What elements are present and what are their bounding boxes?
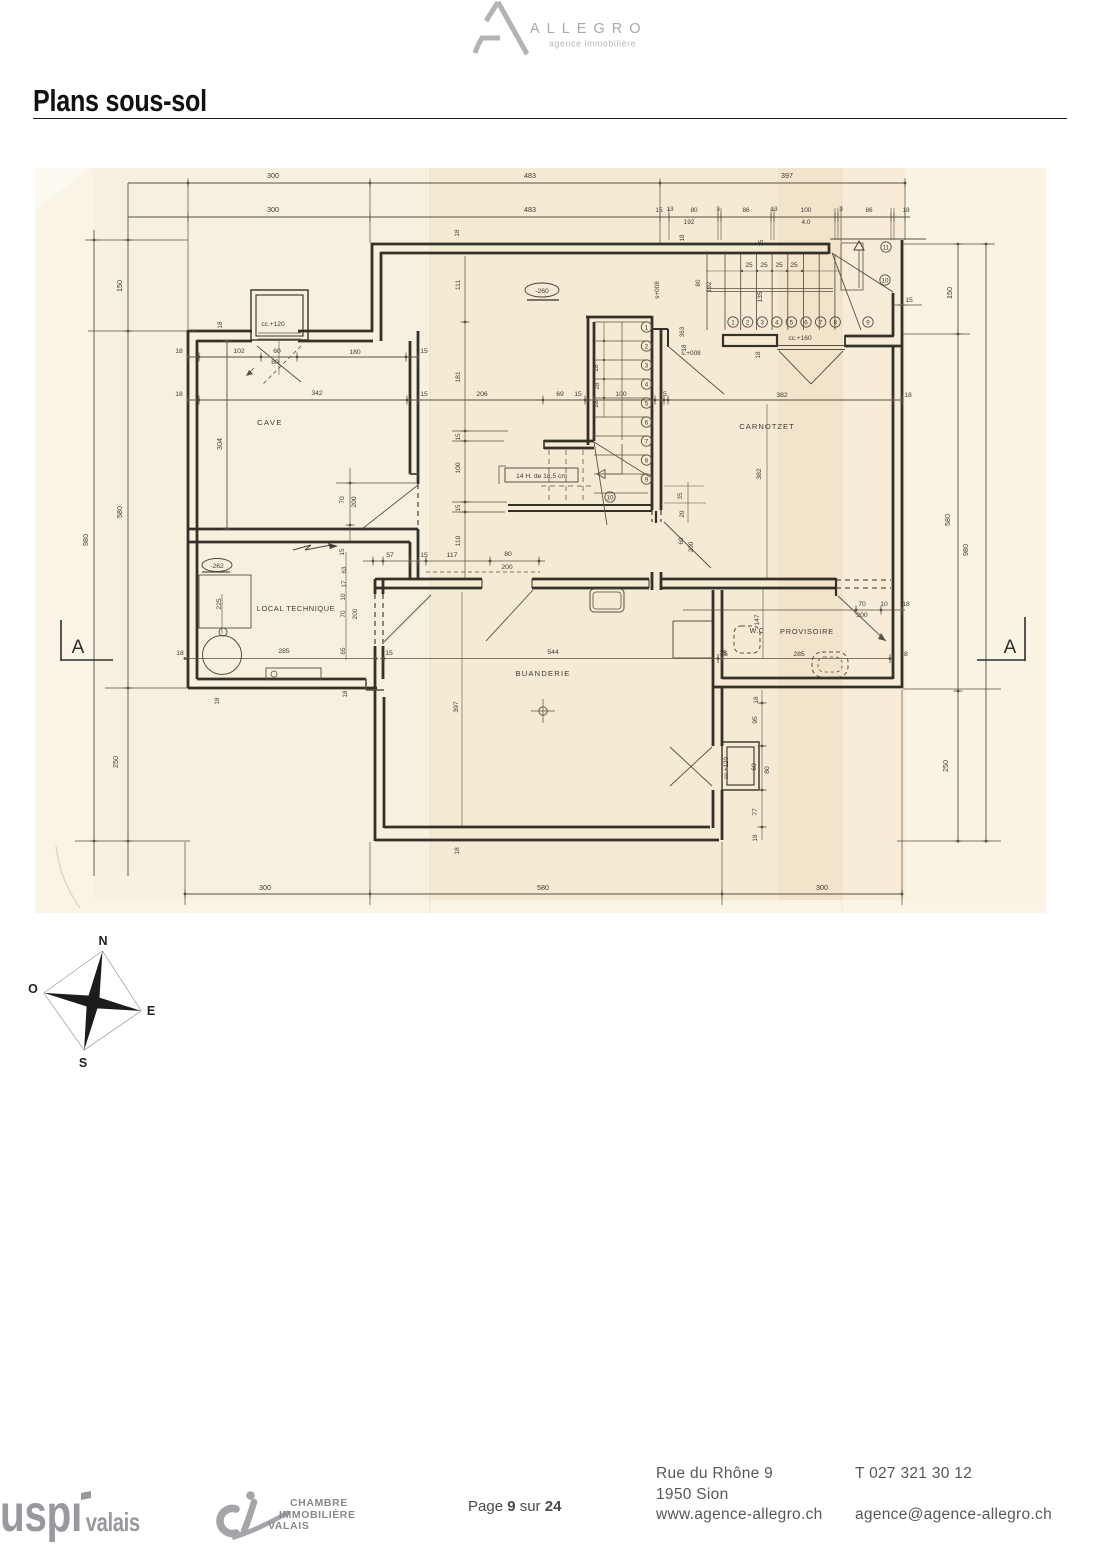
svg-text:18: 18 xyxy=(681,344,688,351)
svg-text:60: 60 xyxy=(273,348,281,355)
svg-text:150: 150 xyxy=(115,280,124,292)
svg-text:69: 69 xyxy=(556,391,564,398)
svg-text:60: 60 xyxy=(751,763,758,771)
svg-text:980: 980 xyxy=(81,534,90,546)
svg-text:8: 8 xyxy=(833,319,837,326)
svg-text:65: 65 xyxy=(340,647,347,655)
svg-text:57: 57 xyxy=(386,552,394,559)
svg-text:200: 200 xyxy=(856,612,868,619)
svg-text:8: 8 xyxy=(645,457,649,464)
svg-text:A: A xyxy=(72,637,85,658)
svg-text:25: 25 xyxy=(760,262,768,269)
svg-text:-262: -262 xyxy=(210,563,224,570)
svg-text:300: 300 xyxy=(267,171,279,180)
svg-text:580: 580 xyxy=(537,883,549,892)
svg-text:70: 70 xyxy=(858,601,866,608)
svg-text:18: 18 xyxy=(902,207,910,214)
svg-text:10: 10 xyxy=(880,601,888,608)
svg-text:CAVE: CAVE xyxy=(257,418,283,427)
svg-text:397: 397 xyxy=(781,171,793,180)
svg-text:100: 100 xyxy=(615,391,627,398)
svg-text:544: 544 xyxy=(547,649,559,656)
svg-text:63: 63 xyxy=(341,566,348,574)
svg-text:200: 200 xyxy=(501,564,513,571)
svg-text:S: S xyxy=(79,1056,87,1070)
svg-text:1: 1 xyxy=(645,324,649,331)
svg-text:9: 9 xyxy=(645,476,649,483)
svg-text:300: 300 xyxy=(267,205,279,214)
svg-text:300: 300 xyxy=(816,883,828,892)
svg-text:15: 15 xyxy=(385,650,393,657)
svg-text:300: 300 xyxy=(259,883,271,892)
svg-text:3: 3 xyxy=(645,362,649,369)
svg-text:10: 10 xyxy=(607,494,614,501)
svg-text:18: 18 xyxy=(454,229,461,237)
svg-text:1: 1 xyxy=(731,319,735,326)
svg-text:35: 35 xyxy=(677,492,684,499)
svg-text:100: 100 xyxy=(801,207,812,214)
svg-text:363: 363 xyxy=(679,326,686,337)
svg-text:117: 117 xyxy=(447,552,458,559)
svg-text:3: 3 xyxy=(760,319,764,326)
svg-text:382: 382 xyxy=(776,392,788,399)
svg-text:A: A xyxy=(1004,637,1017,658)
svg-text:10: 10 xyxy=(340,593,347,601)
svg-text:111: 111 xyxy=(455,280,462,291)
svg-text:15: 15 xyxy=(758,239,765,246)
svg-text:6: 6 xyxy=(645,419,649,426)
svg-text:580: 580 xyxy=(115,506,124,518)
svg-text:9: 9 xyxy=(866,319,870,326)
svg-text:304: 304 xyxy=(215,438,224,450)
svg-text:200: 200 xyxy=(352,608,359,619)
svg-text:95: 95 xyxy=(752,716,759,724)
svg-text:4: 4 xyxy=(775,319,779,326)
svg-text:11: 11 xyxy=(883,244,890,251)
svg-text:483: 483 xyxy=(524,171,536,180)
svg-text:5: 5 xyxy=(645,400,649,407)
svg-text:18: 18 xyxy=(175,348,183,355)
svg-text:15: 15 xyxy=(420,552,428,559)
svg-text:483: 483 xyxy=(524,205,536,214)
svg-text:18: 18 xyxy=(175,391,183,398)
svg-text:25: 25 xyxy=(775,262,783,269)
svg-text:80: 80 xyxy=(764,766,771,774)
svg-text:18: 18 xyxy=(217,321,224,329)
svg-text:342: 342 xyxy=(311,390,323,397)
svg-text:17: 17 xyxy=(341,580,348,588)
svg-text:2: 2 xyxy=(746,319,750,326)
svg-text:7: 7 xyxy=(645,438,649,445)
svg-text:-260: -260 xyxy=(535,288,549,295)
svg-text:70: 70 xyxy=(340,610,347,618)
svg-text:80: 80 xyxy=(690,207,698,214)
svg-text:7: 7 xyxy=(819,319,823,326)
svg-text:cc.+120: cc.+120 xyxy=(723,757,730,779)
svg-text:15: 15 xyxy=(574,391,582,398)
svg-text:60: 60 xyxy=(678,537,685,544)
svg-text:20: 20 xyxy=(679,510,686,517)
svg-text:192: 192 xyxy=(684,219,695,226)
svg-text:15: 15 xyxy=(455,504,462,511)
svg-text:200: 200 xyxy=(351,496,358,508)
svg-text:15: 15 xyxy=(420,348,428,355)
svg-text:192: 192 xyxy=(706,281,713,292)
svg-text:cc.+120: cc.+120 xyxy=(261,321,285,328)
svg-text:10: 10 xyxy=(882,277,889,284)
svg-text:14 H. de 18,5 cm: 14 H. de 18,5 cm xyxy=(516,473,567,480)
svg-text:206: 206 xyxy=(476,391,488,398)
svg-text:200: 200 xyxy=(688,541,695,552)
svg-text:285: 285 xyxy=(793,651,805,658)
svg-text:147: 147 xyxy=(754,614,761,626)
svg-text:80: 80 xyxy=(271,359,279,366)
svg-text:28: 28 xyxy=(594,382,601,390)
svg-text:25: 25 xyxy=(745,262,753,269)
svg-text:18: 18 xyxy=(904,392,912,399)
svg-text:25: 25 xyxy=(790,262,798,269)
svg-text:18: 18 xyxy=(755,351,762,359)
svg-text:15: 15 xyxy=(659,391,667,398)
svg-text:15: 15 xyxy=(655,207,663,214)
svg-text:100: 100 xyxy=(455,462,462,474)
svg-text:181: 181 xyxy=(455,371,462,383)
svg-text:18: 18 xyxy=(902,601,910,608)
svg-text:580: 580 xyxy=(943,514,952,526)
svg-text:28: 28 xyxy=(593,400,600,408)
svg-text:397: 397 xyxy=(453,701,460,713)
svg-text:15: 15 xyxy=(720,651,728,658)
svg-text:180: 180 xyxy=(349,349,361,356)
svg-text:4.0: 4.0 xyxy=(802,219,811,226)
svg-text:980: 980 xyxy=(961,544,970,556)
svg-text:s+008: s+008 xyxy=(654,281,661,299)
svg-text:BUANDERIE: BUANDERIE xyxy=(515,669,570,678)
svg-text:80: 80 xyxy=(504,551,512,558)
svg-text:W.C: W.C xyxy=(750,628,765,635)
svg-text:15: 15 xyxy=(905,297,913,304)
svg-text:18: 18 xyxy=(214,697,221,705)
svg-text:18: 18 xyxy=(679,234,686,241)
svg-text:18: 18 xyxy=(454,847,461,855)
svg-text:O: O xyxy=(28,982,38,996)
svg-text:135: 135 xyxy=(757,291,764,302)
svg-text:102: 102 xyxy=(233,348,245,355)
svg-text:PROVISOIRE: PROVISOIRE xyxy=(780,627,834,636)
svg-text:18: 18 xyxy=(753,696,760,704)
svg-text:86: 86 xyxy=(865,207,873,214)
svg-text:15: 15 xyxy=(420,391,428,398)
svg-text:382: 382 xyxy=(756,468,763,480)
svg-text:18: 18 xyxy=(900,651,908,658)
svg-text:18: 18 xyxy=(342,690,349,698)
svg-text:15: 15 xyxy=(339,548,346,555)
svg-text:110: 110 xyxy=(455,535,462,546)
svg-text:80: 80 xyxy=(695,279,702,287)
svg-text:250: 250 xyxy=(941,760,950,772)
svg-text:70: 70 xyxy=(339,496,346,504)
svg-text:18: 18 xyxy=(752,834,759,842)
svg-text:N: N xyxy=(98,934,107,948)
svg-text:5: 5 xyxy=(790,319,794,326)
svg-text:13: 13 xyxy=(666,206,674,213)
svg-text:250: 250 xyxy=(111,756,120,768)
svg-text:4: 4 xyxy=(645,381,649,388)
svg-text:15: 15 xyxy=(455,433,462,440)
svg-text:cc.+160: cc.+160 xyxy=(788,335,812,342)
svg-text:86: 86 xyxy=(742,207,750,214)
svg-text:18: 18 xyxy=(176,650,184,657)
svg-text:LOCAL TECHNIQUE: LOCAL TECHNIQUE xyxy=(257,604,335,613)
svg-text:285: 285 xyxy=(278,648,290,655)
svg-text:2: 2 xyxy=(645,343,649,350)
svg-text:28: 28 xyxy=(593,364,600,372)
svg-text:6: 6 xyxy=(804,319,808,326)
svg-text:E: E xyxy=(147,1004,155,1018)
svg-text:150: 150 xyxy=(945,287,954,299)
svg-text:77: 77 xyxy=(752,808,759,816)
